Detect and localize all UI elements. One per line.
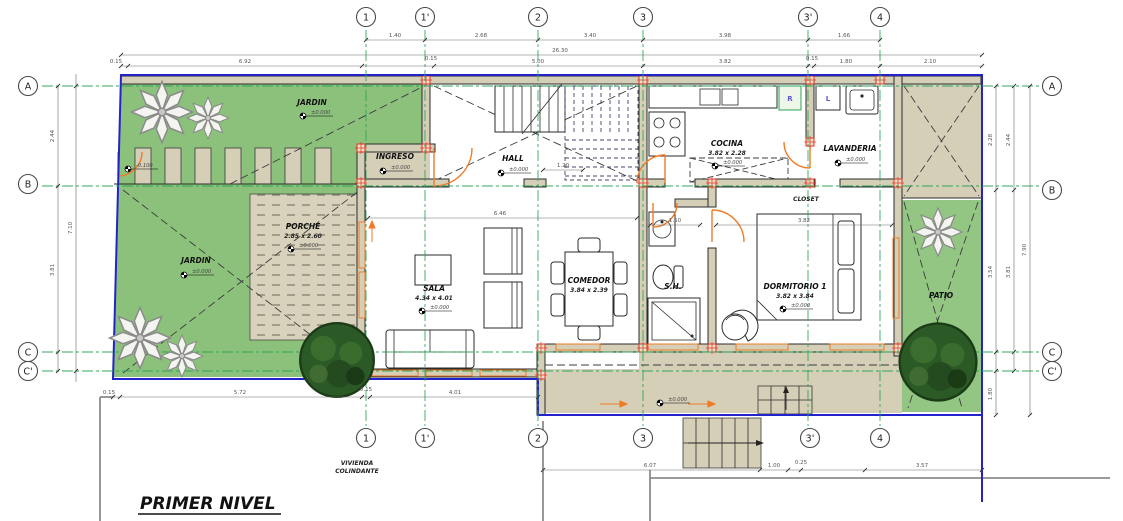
dim-label: 1.00 [768, 463, 781, 469]
dim-label: 4.01 [449, 390, 461, 396]
dim-label: 7.90 [1022, 243, 1028, 256]
laundry-sink [846, 86, 878, 114]
chair [578, 326, 600, 340]
room-label-cocina: COCINA [711, 139, 743, 148]
tree-icon [900, 324, 977, 401]
grid-label: 2 [535, 13, 541, 24]
dim-label: 0.15 [425, 56, 438, 62]
dim-label: 2.28 [988, 133, 994, 146]
room-dims: 3.82 x 3.84 [776, 293, 814, 300]
dim-label: 6.07 [644, 463, 657, 469]
grid-label: A [1049, 82, 1056, 93]
room-label-comedor: COMEDOR [568, 276, 611, 285]
tree-icon [300, 323, 374, 397]
room-label-hall: HALL [502, 154, 524, 163]
palm-icon [187, 97, 229, 139]
neighbor-note-line2: COLINDANTE [335, 468, 379, 475]
level-value: ±0.000 [192, 269, 212, 275]
level-value: ±0.000 [299, 243, 319, 249]
palm-icon [914, 208, 962, 256]
bedroom-chair [722, 314, 748, 340]
dim-label: 2.44 [50, 129, 56, 142]
dim-label: 0.25 [795, 460, 808, 466]
room-dims: 3.82 x 2.28 [708, 150, 746, 157]
grid-label: 3' [804, 13, 813, 24]
grid-label: A [25, 82, 32, 93]
dim-label: 1.40 [389, 33, 402, 39]
stairs-exterior [683, 418, 764, 468]
room-label-patio: PATIO [929, 291, 954, 300]
level-value: ±0.000 [391, 165, 411, 171]
dim-label: 1.80 [840, 59, 853, 65]
dim-label: 3.82 [719, 59, 731, 65]
dim-label: 0.15 [360, 387, 373, 393]
dim-label: 2.44 [1006, 133, 1012, 146]
stairs-terrace [758, 386, 812, 414]
grid-label: 1 [363, 13, 369, 24]
grid-label: C [25, 348, 32, 359]
stove [649, 112, 685, 156]
room-label-ingreso: INGRESO [376, 152, 415, 161]
dim-label: 6.92 [239, 59, 251, 65]
dim-label: 2.10 [924, 59, 937, 65]
dim-label: 0.15 [806, 56, 819, 62]
room-label-porche: PORCHE [286, 222, 321, 231]
room-label-sala: SALA [423, 284, 445, 293]
lavanderia-fixtures: L [816, 86, 878, 114]
level-value: ±0.000 [509, 167, 529, 173]
shower [648, 298, 700, 344]
washer-label: L [826, 95, 831, 103]
level-value: ±0.000 [311, 110, 331, 116]
grid-label: 4 [877, 434, 883, 445]
chair [551, 294, 564, 316]
room-dims: 3.84 x 2.39 [570, 287, 608, 294]
dim-label: 3.54 [988, 265, 994, 278]
dim-label: 6.46 [494, 211, 507, 217]
dim-label: 3.57 [916, 463, 929, 469]
palm-icon [132, 82, 193, 143]
fridge-label: R [787, 95, 793, 103]
dim-label: 26.30 [552, 48, 568, 54]
dim-label: 0.15 [110, 59, 123, 65]
chair [551, 262, 564, 284]
dim-label: 5.72 [234, 390, 246, 396]
chair [578, 238, 600, 252]
grid-label: B [1049, 186, 1056, 197]
grid-label: C [1049, 348, 1056, 359]
dim-label: 3.82 [798, 218, 810, 224]
grid-label: 4 [877, 13, 883, 24]
dim-label: 1.66 [838, 33, 851, 39]
level-value: ±0.000 [723, 160, 743, 166]
dim-label: 1.80 [988, 387, 994, 400]
grid-label: 3 [640, 434, 646, 445]
room-dims: 4.34 x 4.01 [415, 295, 453, 302]
palm-icon [110, 308, 171, 369]
floor-plan-sheet: R L [0, 0, 1123, 521]
grid-label: B [25, 180, 32, 191]
dim-label: 1.50 [669, 218, 682, 224]
grid-label: C' [23, 367, 32, 378]
dim-label: 3.81 [50, 264, 56, 276]
room-label-closet: CLOSET [793, 196, 820, 203]
palm-icon [161, 335, 203, 377]
armchair [484, 282, 522, 328]
level-value: ±0.000 [430, 305, 450, 311]
grid-label: 3' [806, 434, 815, 445]
room-label-jardin-top: JARDIN [295, 98, 327, 107]
pillow [838, 269, 854, 313]
dim-label: 3.81 [1006, 266, 1012, 278]
room-label-lavanderia: LAVANDERIA [823, 144, 876, 153]
dim-label: 3.40 [584, 33, 597, 39]
level-value: ±0.000 [791, 303, 811, 309]
room-label-dormitorio1: DORMITORIO 1 [764, 282, 827, 291]
dim-label: 3.98 [719, 33, 732, 39]
grid-label: 1' [421, 434, 430, 445]
dim-label: 5.00 [532, 59, 545, 65]
room-label-sh: S.H. [664, 282, 681, 291]
dim-label: 0.15 [103, 390, 116, 396]
neighbor-note-line1: VIVIENDA [341, 460, 374, 467]
dim-label: 7.10 [68, 221, 74, 234]
armchair [484, 228, 522, 274]
room-label-jardin-left: JARDIN [179, 256, 211, 265]
grid-label: C' [1047, 367, 1056, 378]
grid-label: 3 [640, 13, 646, 24]
coffee-table [415, 255, 451, 285]
grid-label: 1 [363, 434, 369, 445]
level-value: ±0.000 [668, 397, 688, 403]
grid-label: 2 [535, 434, 541, 445]
chair [614, 294, 627, 316]
level-value: -0.100 [136, 163, 153, 169]
room-dims: 2.85 x 2.60 [284, 233, 322, 240]
grid-label: 1' [421, 13, 430, 24]
drawing-title: PRIMER NIVEL [140, 494, 276, 514]
level-value: ±0.000 [846, 157, 866, 163]
dim-label: 1.20 [557, 163, 570, 169]
pillow [838, 221, 854, 265]
dim-label: 2.68 [475, 33, 488, 39]
porch-floor [250, 194, 357, 340]
floor-plan-drawing: R L [0, 0, 1123, 521]
chair [614, 262, 627, 284]
